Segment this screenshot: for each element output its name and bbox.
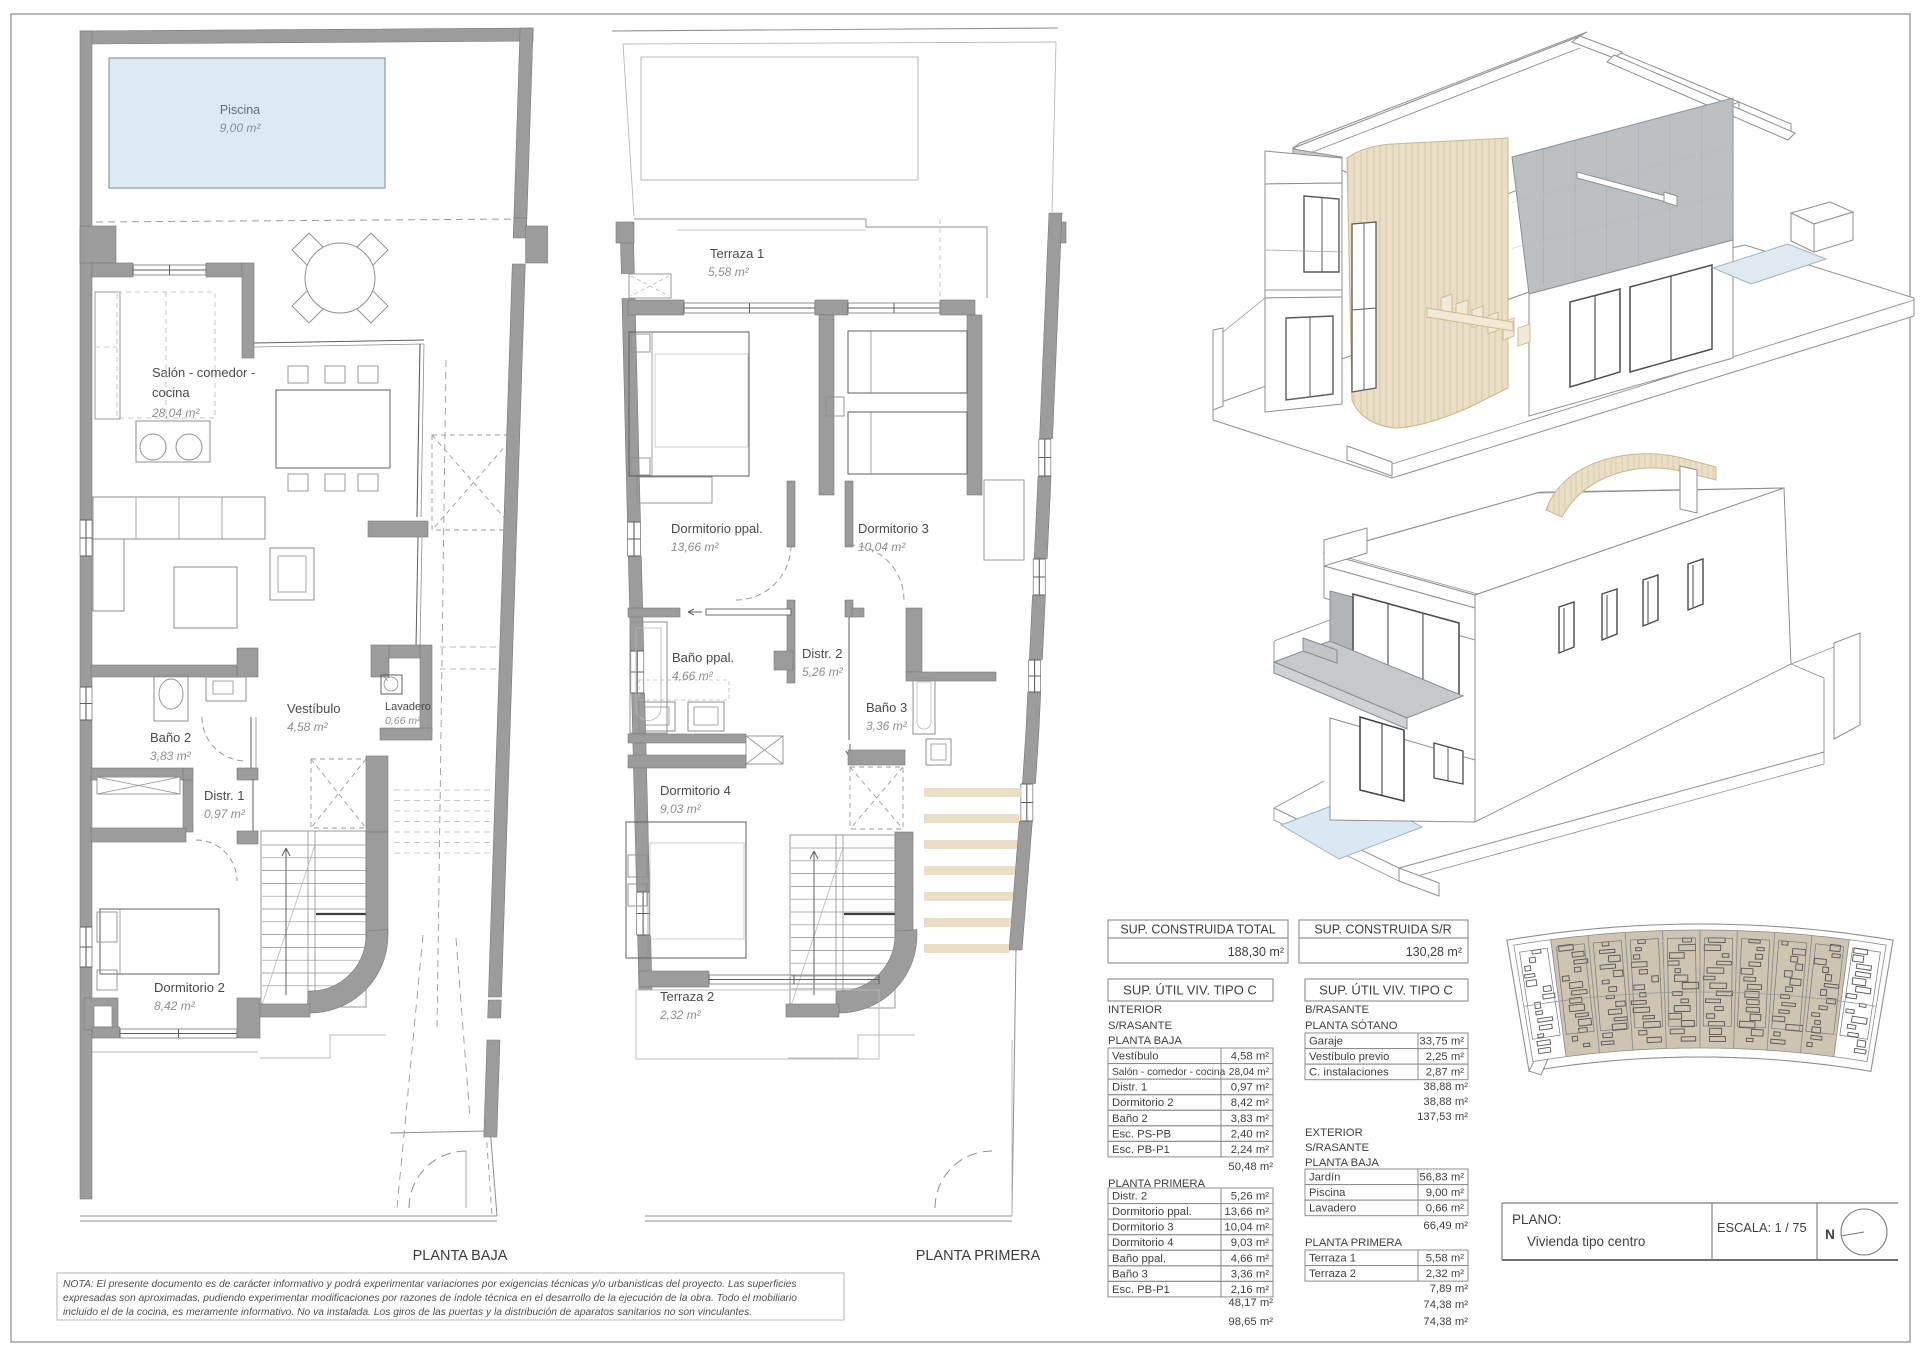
svg-text:Vivienda tipo centro: Vivienda tipo centro	[1527, 1234, 1645, 1249]
svg-text:PLANTA BAJA: PLANTA BAJA	[1108, 1035, 1182, 1047]
svg-text:13,66 m²: 13,66 m²	[671, 540, 719, 554]
svg-text:2,32 m²: 2,32 m²	[659, 1008, 702, 1022]
svg-text:INTERIOR: INTERIOR	[1108, 1004, 1162, 1016]
svg-text:Esc. PB-P1: Esc. PB-P1	[1112, 1144, 1170, 1156]
svg-text:5,58 m²: 5,58 m²	[708, 265, 750, 279]
svg-text:Dormitorio ppal.: Dormitorio ppal.	[671, 521, 763, 536]
svg-text:5,26 m²: 5,26 m²	[802, 665, 844, 679]
svg-text:Distr. 2: Distr. 2	[1112, 1191, 1147, 1203]
svg-text:NOTA: El presente documento es: NOTA: El presente documento es de caráct…	[63, 1279, 797, 1290]
svg-text:Baño 3: Baño 3	[1112, 1268, 1148, 1280]
svg-text:4,66 m²: 4,66 m²	[1231, 1253, 1270, 1265]
svg-text:SUP. ÚTIL VIV. TIPO C: SUP. ÚTIL VIV. TIPO C	[1123, 983, 1257, 998]
svg-text:5,26 m²: 5,26 m²	[1231, 1191, 1270, 1203]
svg-text:Dormitorio 2: Dormitorio 2	[154, 980, 225, 995]
svg-text:N: N	[1825, 1227, 1835, 1242]
svg-text:8,42 m²: 8,42 m²	[154, 999, 196, 1013]
svg-text:S/RASANTE: S/RASANTE	[1305, 1142, 1369, 1154]
svg-text:Piscina: Piscina	[220, 103, 260, 117]
svg-text:Dormitorio 4: Dormitorio 4	[660, 783, 731, 798]
svg-text:Terraza 1: Terraza 1	[1309, 1253, 1356, 1265]
svg-text:Terraza 2: Terraza 2	[660, 989, 714, 1004]
svg-text:2,40 m²: 2,40 m²	[1231, 1128, 1270, 1140]
svg-text:Esc. PS-PB: Esc. PS-PB	[1112, 1128, 1171, 1140]
svg-text:28,04 m²: 28,04 m²	[1229, 1067, 1270, 1078]
svg-text:2,24 m²: 2,24 m²	[1231, 1144, 1270, 1156]
svg-text:ESCALA: 1 / 75: ESCALA: 1 / 75	[1717, 1220, 1807, 1235]
svg-text:3,36 m²: 3,36 m²	[1231, 1268, 1270, 1280]
svg-text:Terraza 1: Terraza 1	[710, 246, 764, 261]
svg-text:3,83 m²: 3,83 m²	[1231, 1113, 1270, 1125]
svg-text:2,32 m²: 2,32 m²	[1426, 1268, 1465, 1280]
svg-text:2,25 m²: 2,25 m²	[1426, 1051, 1465, 1063]
svg-text:130,28 m²: 130,28 m²	[1406, 945, 1462, 959]
svg-text:Dormitorio 2: Dormitorio 2	[1112, 1097, 1174, 1109]
svg-text:PLANTA SÓTANO: PLANTA SÓTANO	[1305, 1019, 1398, 1032]
svg-text:3,36 m²: 3,36 m²	[866, 719, 908, 733]
svg-text:8,42 m²: 8,42 m²	[1231, 1097, 1270, 1109]
svg-text:C. instalaciones: C. instalaciones	[1309, 1067, 1389, 1079]
svg-text:48,17 m²: 48,17 m²	[1228, 1297, 1273, 1309]
svg-text:0,66 m²: 0,66 m²	[1426, 1203, 1465, 1215]
svg-text:33,75 m²: 33,75 m²	[1419, 1036, 1464, 1048]
svg-text:B/RASANTE: B/RASANTE	[1305, 1004, 1369, 1016]
svg-text:S/RASANTE: S/RASANTE	[1108, 1020, 1172, 1032]
svg-text:4,66 m²: 4,66 m²	[672, 669, 714, 683]
svg-text:incluido el de la cocina, es m: incluido el de la cocina, es meramente i…	[63, 1307, 752, 1318]
svg-text:cocina: cocina	[152, 385, 190, 400]
svg-text:PLANTA PRIMERA: PLANTA PRIMERA	[1305, 1237, 1403, 1249]
svg-text:Lavadero: Lavadero	[385, 701, 431, 713]
svg-text:50,48 m²: 50,48 m²	[1228, 1161, 1273, 1173]
svg-text:98,65 m²: 98,65 m²	[1228, 1316, 1273, 1328]
svg-text:4,58 m²: 4,58 m²	[287, 720, 329, 734]
svg-text:PLANTA BAJA: PLANTA BAJA	[1305, 1157, 1379, 1169]
svg-text:74,38 m²: 74,38 m²	[1423, 1316, 1468, 1328]
svg-text:0,66 m²: 0,66 m²	[385, 715, 421, 727]
svg-text:Dormitorio 4: Dormitorio 4	[1112, 1237, 1174, 1249]
svg-text:9,00 m²: 9,00 m²	[220, 121, 262, 135]
svg-text:Baño 2: Baño 2	[1112, 1113, 1148, 1125]
svg-text:Distr. 1: Distr. 1	[1112, 1082, 1147, 1094]
svg-text:Vestíbulo: Vestíbulo	[1112, 1051, 1158, 1063]
svg-text:Salón - comedor - cocina: Salón - comedor - cocina	[1112, 1067, 1226, 1078]
svg-text:Baño ppal.: Baño ppal.	[1112, 1253, 1166, 1265]
svg-text:EXTERIOR: EXTERIOR	[1305, 1127, 1363, 1139]
svg-text:SUP. ÚTIL VIV. TIPO C: SUP. ÚTIL VIV. TIPO C	[1319, 983, 1453, 998]
svg-text:SUP. CONSTRUIDA TOTAL: SUP. CONSTRUIDA TOTAL	[1120, 923, 1275, 937]
svg-text:10,04 m²: 10,04 m²	[858, 540, 906, 554]
svg-text:Baño 3: Baño 3	[866, 700, 907, 715]
svg-text:0,97 m²: 0,97 m²	[1231, 1082, 1270, 1094]
svg-text:Terraza 2: Terraza 2	[1309, 1268, 1356, 1280]
svg-text:Piscina: Piscina	[1309, 1187, 1346, 1199]
svg-text:9,03 m²: 9,03 m²	[660, 802, 702, 816]
svg-text:188,30 m²: 188,30 m²	[1228, 945, 1284, 959]
svg-text:Garaje: Garaje	[1309, 1036, 1343, 1048]
svg-text:2,16 m²: 2,16 m²	[1231, 1284, 1270, 1296]
svg-text:Esc. PB-P1: Esc. PB-P1	[1112, 1284, 1170, 1296]
svg-text:Salón - comedor -: Salón - comedor -	[152, 365, 255, 380]
svg-text:PLANO:: PLANO:	[1512, 1212, 1562, 1227]
svg-text:56,83 m²: 56,83 m²	[1419, 1172, 1464, 1184]
svg-text:9,00 m²: 9,00 m²	[1426, 1187, 1465, 1199]
svg-text:Distr. 2: Distr. 2	[802, 646, 842, 661]
svg-text:38,88 m²: 38,88 m²	[1423, 1096, 1468, 1108]
svg-text:Vestíbulo: Vestíbulo	[287, 701, 341, 716]
svg-text:3,83 m²: 3,83 m²	[150, 749, 192, 763]
svg-text:Jardín: Jardín	[1309, 1172, 1340, 1184]
svg-text:SUP. CONSTRUIDA S/R: SUP. CONSTRUIDA S/R	[1314, 923, 1451, 937]
svg-text:Dormitorio 3: Dormitorio 3	[1112, 1222, 1174, 1234]
svg-text:Vestíbulo previo: Vestíbulo previo	[1309, 1051, 1389, 1063]
svg-text:Distr. 1: Distr. 1	[204, 788, 244, 803]
svg-text:expresadas son aproximadas, pu: expresadas son aproximadas, pudiendo exp…	[63, 1293, 797, 1304]
svg-text:137,53 m²: 137,53 m²	[1417, 1111, 1468, 1123]
svg-text:13,66 m²: 13,66 m²	[1224, 1206, 1269, 1218]
svg-text:9,03 m²: 9,03 m²	[1231, 1237, 1270, 1249]
svg-text:Dormitorio 3: Dormitorio 3	[858, 521, 929, 536]
svg-text:Baño ppal.: Baño ppal.	[672, 650, 734, 665]
svg-text:38,88 m²: 38,88 m²	[1423, 1081, 1468, 1093]
svg-text:Lavadero: Lavadero	[1309, 1203, 1356, 1215]
svg-text:74,38 m²: 74,38 m²	[1423, 1299, 1468, 1311]
svg-text:66,49 m²: 66,49 m²	[1423, 1220, 1468, 1232]
svg-text:0,97 m²: 0,97 m²	[204, 807, 246, 821]
svg-text:PLANTA BAJA: PLANTA BAJA	[413, 1248, 508, 1264]
svg-text:10,04 m²: 10,04 m²	[1224, 1222, 1269, 1234]
svg-text:7,89 m²: 7,89 m²	[1430, 1283, 1469, 1295]
svg-text:PLANTA PRIMERA: PLANTA PRIMERA	[916, 1248, 1041, 1264]
svg-text:4,58 m²: 4,58 m²	[1231, 1051, 1270, 1063]
svg-text:Dormitorio ppal.: Dormitorio ppal.	[1112, 1206, 1192, 1218]
svg-text:Baño 2: Baño 2	[150, 730, 191, 745]
svg-text:5,58 m²: 5,58 m²	[1426, 1253, 1465, 1265]
svg-text:2,87 m²: 2,87 m²	[1426, 1067, 1465, 1079]
